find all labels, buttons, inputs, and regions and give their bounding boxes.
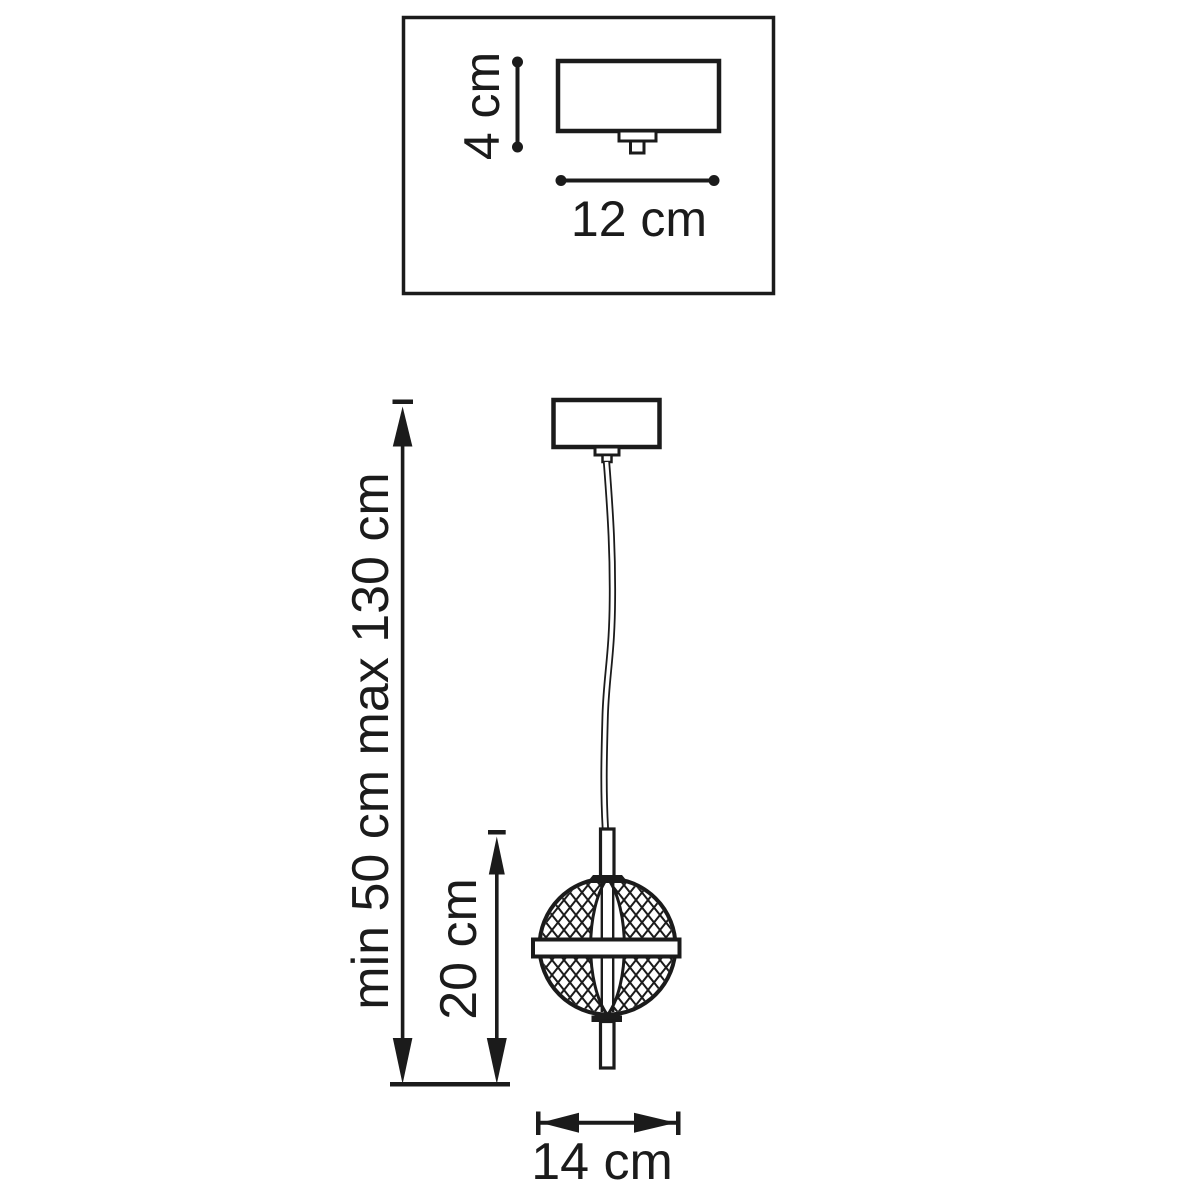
canopy-top-view-outline: [558, 61, 719, 131]
equator-band: [533, 940, 680, 957]
dim-dot-12cm-right: [709, 175, 720, 186]
dim-14cm-arrow-left: [541, 1113, 580, 1133]
canopy-connector-tab: [631, 141, 645, 153]
fixture-height-dimension-label: 20 cm: [433, 878, 485, 1020]
dim-long-top-tick: [393, 400, 414, 405]
sphere-top-cap: [587, 875, 629, 883]
stem-rod-top: [601, 829, 615, 877]
ceiling-canopy-outline: [554, 400, 660, 447]
drawing-canvas: [0, 0, 1200, 1200]
pendant-lamp-group: [533, 400, 680, 1068]
dim-20cm-arrow-down: [487, 1038, 507, 1084]
dim-14cm-right-tick: [676, 1112, 681, 1136]
dim-20cm-arrow-up: [489, 837, 505, 875]
dim-long-arrow-down: [393, 1038, 413, 1084]
dim-20cm-top-tick: [488, 830, 506, 835]
stem-rod-bottom: [601, 1022, 615, 1069]
dim-dot-12cm-left: [556, 175, 567, 186]
fixture-width-dimension-label: 14 cm: [531, 1136, 673, 1188]
dim-dot-4cm-bottom: [512, 142, 523, 153]
dim-dot-4cm-top: [512, 57, 523, 68]
pendant-lamp-dimension-drawing: 4 cm 12 cm min 50 cm max 130 cm 20 cm 14…: [0, 0, 1200, 1200]
canopy-tab: [603, 455, 612, 462]
suspension-height-dimension-label: min 50 cm max 130 cm: [345, 472, 397, 1010]
dim-long-arrow-up: [393, 407, 413, 447]
dimension-lines-group: [390, 400, 681, 1136]
inset-height-dimension-label: 4 cm: [457, 52, 507, 160]
inset-width-dimension-label: 12 cm: [571, 194, 707, 244]
dim-14cm-left-tick: [536, 1112, 541, 1136]
dim-14cm-arrow-right: [634, 1113, 676, 1133]
